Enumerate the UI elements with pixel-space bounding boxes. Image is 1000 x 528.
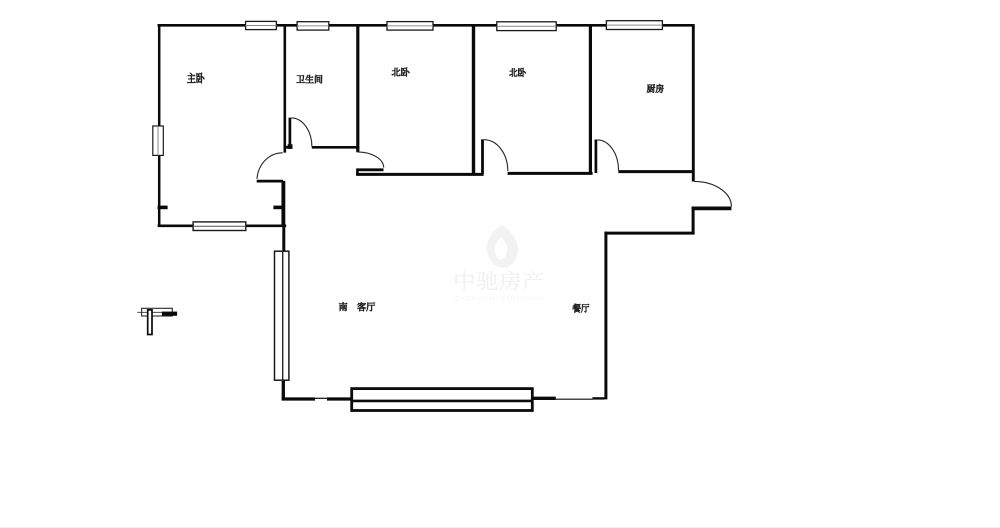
svg-text:ZHONGCHI FANGCHAN: ZHONGCHI FANGCHAN <box>455 296 545 303</box>
